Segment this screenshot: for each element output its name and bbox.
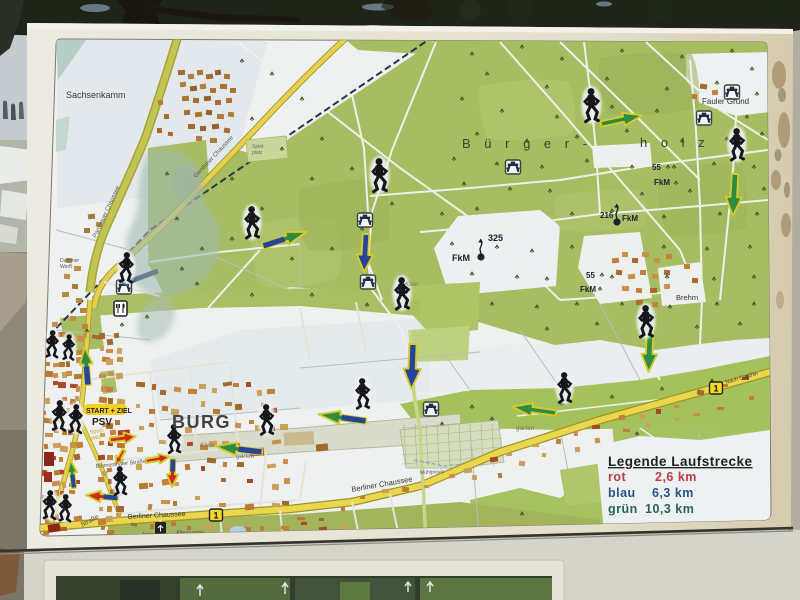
svg-text:Klein: Klein — [200, 442, 215, 449]
svg-text:6,3 km: 6,3 km — [652, 486, 694, 500]
svg-text:grün: grün — [608, 502, 638, 516]
svg-text:Legende Laufstrecke: Legende Laufstrecke — [608, 454, 753, 469]
svg-text:B ü r g e r -: B ü r g e r - — [462, 136, 592, 151]
svg-text:55: 55 — [586, 271, 595, 280]
svg-text:h o l z: h o l z — [640, 135, 710, 150]
svg-text:BURG: BURG — [172, 412, 231, 432]
svg-text:325: 325 — [488, 233, 503, 243]
svg-text:1: 1 — [713, 384, 718, 394]
svg-text:FkM: FkM — [452, 253, 470, 263]
svg-text:10,3 km: 10,3 km — [645, 502, 694, 516]
svg-text:START + ZIEL: START + ZIEL — [86, 408, 133, 415]
svg-text:FkM: FkM — [580, 285, 596, 294]
svg-text:Klein: Klein — [405, 282, 419, 288]
svg-text:PSV: PSV — [92, 417, 112, 428]
svg-text:2,6 km: 2,6 km — [655, 470, 697, 484]
svg-text:blau: blau — [608, 486, 636, 500]
svg-text:Werft: Werft — [60, 264, 72, 270]
svg-text:Sachsenkamm: Sachsenkamm — [66, 90, 126, 100]
svg-text:gärten: gärten — [236, 453, 255, 460]
svg-text:FkM: FkM — [622, 214, 638, 223]
svg-text:1: 1 — [213, 511, 218, 521]
svg-text:gärten: gärten — [516, 425, 535, 432]
svg-text:Brehm: Brehm — [676, 293, 698, 302]
svg-text:FkM: FkM — [654, 178, 670, 187]
svg-text:55: 55 — [652, 163, 661, 172]
svg-text:rot: rot — [608, 470, 627, 484]
svg-text:Fauler Grund: Fauler Grund — [702, 97, 749, 106]
svg-text:platz: platz — [252, 150, 263, 156]
svg-text:Mühlprovis: Mühlprovis — [420, 469, 445, 476]
svg-text:216: 216 — [600, 211, 614, 220]
